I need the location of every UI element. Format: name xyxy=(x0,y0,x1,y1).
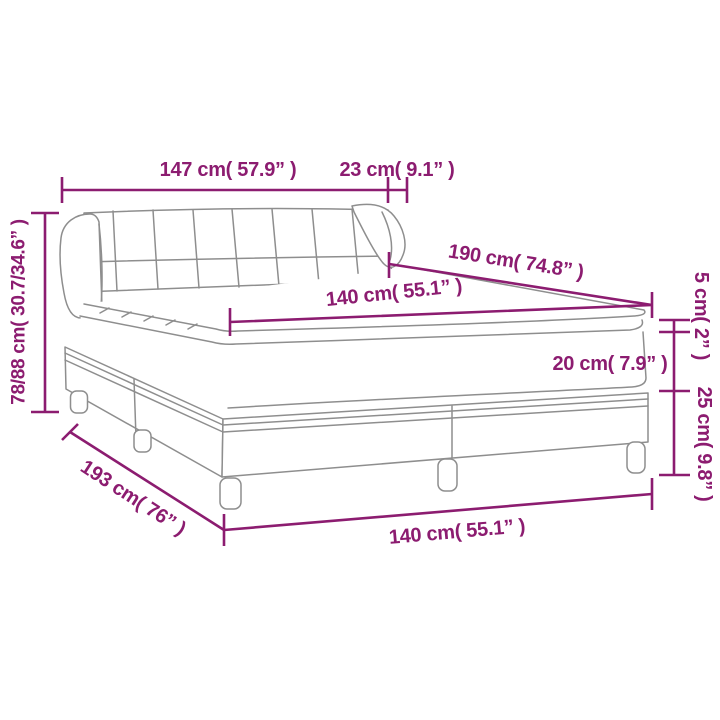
bed-leg xyxy=(220,478,241,509)
bed-leg xyxy=(438,459,457,491)
bed-leg xyxy=(71,391,88,413)
topper-height-label: 5 cm( 2” ) xyxy=(690,272,712,360)
dim-line xyxy=(659,320,690,475)
dim-headboard-wing: 23 cm( 9.1” ) xyxy=(339,159,454,203)
mattress-height-label: 20 cm( 7.9” ) xyxy=(552,353,667,375)
headboard-width-label: 147 cm( 57.9” ) xyxy=(160,159,297,181)
dim-bed-base-width: 140 cm( 55.1” ) xyxy=(224,478,652,549)
bed-dimension-diagram: 147 cm( 57.9” ) 23 cm( 9.1” ) 78/88 cm( … xyxy=(0,0,720,720)
dim-line xyxy=(31,213,59,412)
bed-leg xyxy=(134,430,151,452)
dim-overall-height: 78/88 cm( 30.7/34.6” ) xyxy=(9,213,60,412)
overall-height-label: 78/88 cm( 30.7/34.6” ) xyxy=(9,219,30,405)
base-leg-height-label: 25 cm( 9.8” ) xyxy=(693,386,715,501)
bed-base-width-label: 140 cm( 55.1” ) xyxy=(388,515,526,549)
bed-leg xyxy=(627,442,645,473)
headboard-wing-label: 23 cm( 9.1” ) xyxy=(339,159,454,181)
diagram-canvas: 147 cm( 57.9” ) 23 cm( 9.1” ) 78/88 cm( … xyxy=(0,0,720,720)
